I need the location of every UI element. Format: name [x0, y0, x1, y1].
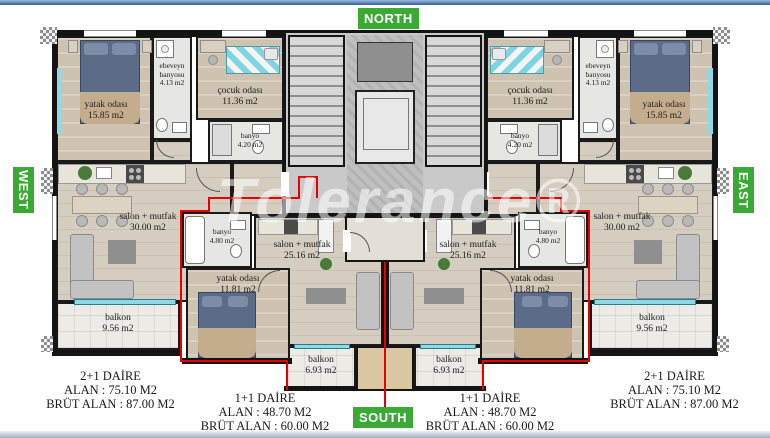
- room-area: 25.16 m2: [428, 251, 508, 262]
- burner: [629, 175, 634, 180]
- unit-alan: ALAN : 75.10 M2: [18, 383, 203, 397]
- elevator-car-inner: [363, 98, 409, 150]
- unit-divider-red: [298, 176, 318, 178]
- room-area: 4.13 m2: [576, 79, 620, 88]
- room-area: 4.80 m2: [526, 237, 570, 246]
- room-area: 6.93 m2: [414, 366, 484, 377]
- label-bedroom-1p1: yatak odası 11.81 m2: [490, 274, 574, 297]
- nightstand: [618, 40, 628, 53]
- chair: [662, 183, 674, 195]
- rug: [634, 240, 662, 264]
- room-area: 25.16 m2: [262, 251, 342, 262]
- window-master-bedroom: [634, 30, 686, 37]
- compass-south: SOUTH: [353, 407, 413, 428]
- stove: [626, 165, 644, 183]
- kids-pillow: [492, 48, 506, 60]
- label-bath-2p1: banyo 4.20 m2: [496, 132, 544, 149]
- room-area: 11.36 m2: [490, 97, 570, 108]
- room-area: 15.85 m2: [62, 111, 150, 122]
- stove-1p1: [284, 220, 298, 234]
- masonry-hatch-bottom: [41, 336, 53, 352]
- label-bath-1p1: banyo 4.80 m2: [200, 228, 244, 245]
- balcony-door-glass-2p1: [74, 299, 176, 305]
- entry-door-gap-2p1: [281, 172, 289, 196]
- pillow: [112, 43, 136, 55]
- nightstand: [142, 40, 152, 53]
- rug-1p1: [424, 288, 464, 304]
- room-area: 11.36 m2: [200, 97, 280, 108]
- center-divider-red: [384, 262, 386, 408]
- unit-divider-red: [208, 197, 300, 199]
- masonry-hatch-corner: [713, 27, 730, 44]
- washing-machine-door: [161, 45, 169, 53]
- chair: [682, 215, 694, 227]
- summary-left-1p1: 1+1 DAİRE ALAN : 48.70 M2 BRÜT ALAN : 60…: [185, 391, 345, 433]
- room-name: salon + mutfak: [428, 240, 508, 251]
- room-area: 6.93 m2: [286, 366, 356, 377]
- nightstand: [68, 40, 78, 53]
- kitchen-sink: [96, 167, 112, 179]
- room-area: 9.56 m2: [612, 324, 692, 335]
- bed-throw-1p1: [198, 328, 256, 358]
- room-name: balkon: [414, 355, 484, 366]
- desk-chair: [552, 55, 562, 65]
- room-name: salon + mutfak: [262, 240, 342, 251]
- sofa-1p1: [356, 272, 380, 330]
- window-master-bedroom: [84, 30, 136, 37]
- room-name: balkon: [78, 313, 158, 324]
- sofa-horizontal: [70, 280, 134, 299]
- unit-divider-red: [208, 197, 210, 212]
- toilet: [528, 244, 540, 258]
- burner: [636, 168, 641, 173]
- stove: [126, 165, 144, 183]
- unit-divider-red: [180, 210, 210, 212]
- masonry-hatch-left: [41, 168, 53, 194]
- room-name: balkon: [612, 313, 692, 324]
- unit-divider-red: [482, 360, 590, 362]
- label-bath-2p1: banyo 4.20 m2: [226, 132, 274, 149]
- pillow: [548, 296, 568, 307]
- unit-divider-red: [316, 176, 318, 198]
- floor-plan-canvas: yatak odası 15.85 m2 ebeveyn banyosu 4.1…: [0, 0, 770, 438]
- window-living: [713, 196, 718, 240]
- window-living: [52, 196, 57, 240]
- staircase-left: [288, 35, 345, 167]
- window-kids-bedroom: [222, 30, 266, 37]
- room-area: 15.85 m2: [620, 111, 708, 122]
- chair: [116, 183, 128, 195]
- balcony-door-glass-1p1: [420, 344, 476, 349]
- pillow: [634, 43, 658, 55]
- room-name: ebeveyn banyosu: [150, 62, 194, 79]
- pillow: [202, 296, 222, 307]
- pillow: [522, 296, 542, 307]
- room-area: 4.13 m2: [150, 79, 194, 88]
- unit-title: 1+1 DAİRE: [410, 391, 570, 405]
- masonry-hatch-bottom: [717, 336, 729, 352]
- room-area: 4.20 m2: [496, 141, 544, 150]
- unit-brut: BRÜT ALAN : 87.00 M2: [592, 397, 757, 411]
- room-area: 9.56 m2: [78, 324, 158, 335]
- unit-divider-red: [180, 210, 182, 362]
- label-balcony-1p1: balkon 6.93 m2: [286, 355, 356, 378]
- room-name: yatak odası: [490, 274, 574, 285]
- compass-east: EAST: [733, 167, 754, 213]
- label-living-1p1: salon + mutfak 25.16 m2: [428, 240, 508, 263]
- chair: [96, 183, 108, 195]
- unit-title: 2+1 DAİRE: [18, 369, 203, 383]
- unit-divider-red: [286, 360, 288, 390]
- room-area: 11.81 m2: [196, 285, 280, 296]
- desk: [200, 40, 226, 53]
- room-area: 11.81 m2: [490, 285, 574, 296]
- elevator-machine-block: [357, 42, 413, 82]
- balcony-door-glass-1p1: [294, 344, 350, 349]
- compass-north: NORTH: [358, 8, 419, 29]
- room-name: ebeveyn banyosu: [576, 62, 620, 79]
- plant: [78, 166, 92, 180]
- pillow: [662, 43, 686, 55]
- masonry-hatch-left: [717, 168, 729, 194]
- washing-machine-door: [601, 45, 609, 53]
- label-master-bedroom: yatak odası 15.85 m2: [620, 100, 708, 123]
- rug: [108, 240, 136, 264]
- toilet: [230, 244, 242, 258]
- summary-left-2p1: 2+1 DAİRE ALAN : 75.10 M2 BRÜT ALAN : 87…: [18, 369, 203, 411]
- label-master-bedroom: yatak odası 15.85 m2: [62, 100, 150, 123]
- burner: [129, 168, 134, 173]
- rug-1p1: [306, 288, 346, 304]
- chair: [76, 183, 88, 195]
- unit-title: 1+1 DAİRE: [185, 391, 345, 405]
- kitchen-sink: [658, 167, 674, 179]
- toilet: [156, 118, 168, 132]
- kitchen-counter: [584, 164, 712, 184]
- room-name: yatak odası: [196, 274, 280, 285]
- balcony-door-glass-2p1: [594, 299, 696, 305]
- right-room-entry-hall-2p1: [486, 162, 538, 216]
- pillow: [228, 296, 248, 307]
- sink: [583, 122, 598, 133]
- compass-west: WEST: [13, 167, 34, 213]
- unit-divider-red: [560, 210, 590, 212]
- stove-1p1: [472, 220, 486, 234]
- burner: [136, 168, 141, 173]
- desk: [544, 40, 570, 53]
- chair: [682, 183, 694, 195]
- summary-right-1p1: 1+1 DAİRE ALAN : 48.70 M2 BRÜT ALAN : 60…: [410, 391, 570, 433]
- unit-alan: ALAN : 48.70 M2: [410, 405, 570, 419]
- sofa-horizontal: [636, 280, 700, 299]
- label-balcony-1p1: balkon 6.93 m2: [414, 355, 484, 378]
- unit-title: 2+1 DAİRE: [592, 369, 757, 383]
- chair: [642, 183, 654, 195]
- room-name: çocuk odası: [200, 86, 280, 97]
- burner: [636, 175, 641, 180]
- unit-alan: ALAN : 48.70 M2: [185, 405, 345, 419]
- nightstand: [692, 40, 702, 53]
- label-bath-1p1: banyo 4.80 m2: [526, 228, 570, 245]
- room-name: çocuk odası: [490, 86, 570, 97]
- exterior-wall-balcony-bottom: [588, 350, 718, 356]
- label-balcony-2p1: balkon 9.56 m2: [78, 313, 158, 336]
- top-border-bar: [0, 0, 770, 5]
- burner: [629, 168, 634, 173]
- window-strip-bedroom: [708, 68, 713, 134]
- summary-right-2p1: 2+1 DAİRE ALAN : 75.10 M2 BRÜT ALAN : 87…: [592, 369, 757, 411]
- desk-chair: [208, 55, 218, 65]
- label-kids-bedroom: çocuk odası 11.36 m2: [490, 86, 570, 109]
- staircase-right: [425, 35, 482, 167]
- label-ensuite-bath: ebeveyn banyosu 4.13 m2: [150, 62, 194, 88]
- sink: [172, 122, 187, 133]
- unit-alan: ALAN : 75.10 M2: [592, 383, 757, 397]
- masonry-hatch-corner: [40, 27, 57, 44]
- unit-divider-red: [298, 176, 300, 198]
- unit-divider-red: [482, 360, 484, 390]
- toilet: [602, 118, 614, 132]
- unit-divider-red: [588, 210, 590, 362]
- room-name: balkon: [286, 355, 356, 366]
- bottom-border-bar: [0, 431, 770, 438]
- kids-pillow: [264, 48, 278, 60]
- room-area: 4.80 m2: [200, 237, 244, 246]
- label-balcony-2p1: balkon 9.56 m2: [612, 313, 692, 336]
- burner: [129, 175, 134, 180]
- room-area: 4.20 m2: [226, 141, 274, 150]
- unit-brut: BRÜT ALAN : 87.00 M2: [18, 397, 203, 411]
- plant: [678, 166, 692, 180]
- room-name: yatak odası: [620, 100, 708, 111]
- unit-divider-red: [180, 360, 288, 362]
- label-ensuite-bath: ebeveyn banyosu 4.13 m2: [576, 62, 620, 88]
- burner: [136, 175, 141, 180]
- unit-divider-red: [560, 197, 562, 212]
- chair: [76, 215, 88, 227]
- sofa-1p1: [390, 272, 414, 330]
- label-living-1p1: salon + mutfak 25.16 m2: [262, 240, 342, 263]
- bed-throw-1p1: [514, 328, 572, 358]
- label-kids-bedroom: çocuk odası 11.36 m2: [200, 86, 280, 109]
- label-bedroom-1p1: yatak odası 11.81 m2: [196, 274, 280, 297]
- exterior-wall-balcony-bottom: [52, 350, 182, 356]
- window-kids-bedroom: [504, 30, 548, 37]
- pillow: [84, 43, 108, 55]
- room-name: yatak odası: [62, 100, 150, 111]
